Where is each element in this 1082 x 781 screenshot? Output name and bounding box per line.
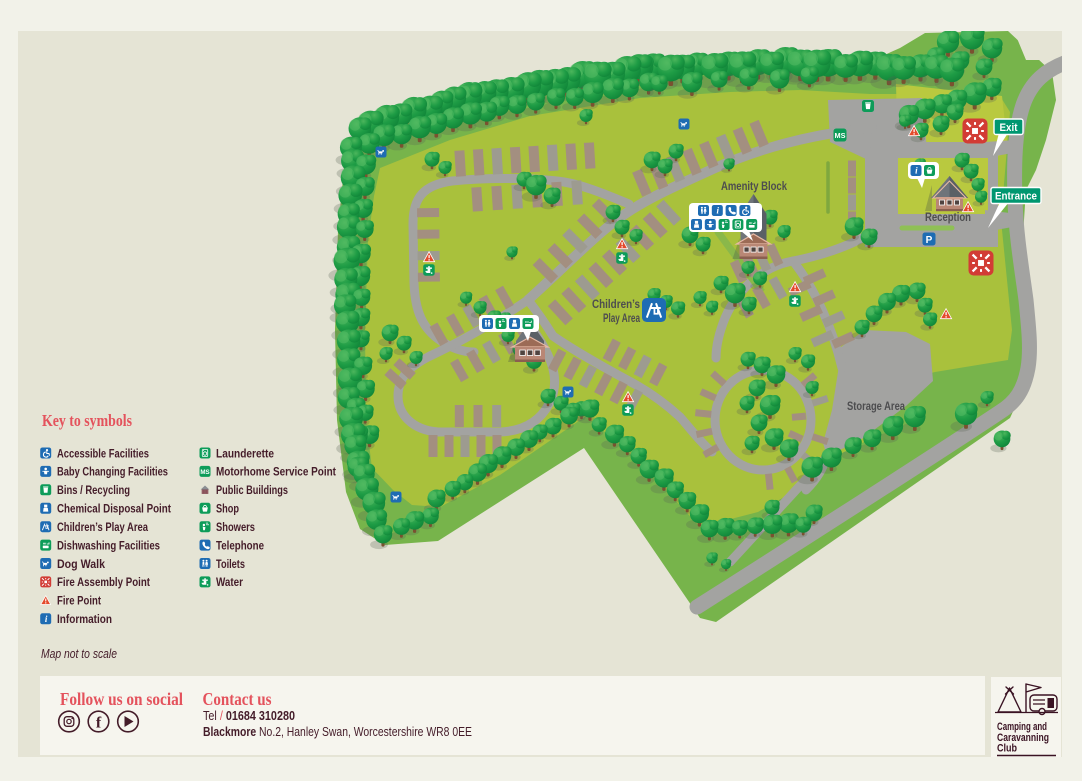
svg-text:Fire Assembly Point: Fire Assembly Point [57,575,150,589]
svg-text:Amenity Block: Amenity Block [721,179,787,193]
svg-text:Toilets: Toilets [216,557,245,571]
svg-text:Information: Information [57,612,112,626]
svg-text:Baby Changing Facilities: Baby Changing Facilities [57,465,168,479]
svg-text:Map not to scale: Map not to scale [41,646,117,661]
svg-text:Dog Walk: Dog Walk [57,557,105,571]
svg-text:Club: Club [997,743,1017,755]
svg-text:P: P [926,235,933,246]
svg-text:Contact us: Contact us [203,689,272,709]
svg-text:Showers: Showers [216,520,255,534]
svg-text:Play Area: Play Area [603,311,640,325]
svg-text:Motorhome Service Point: Motorhome Service Point [216,465,336,479]
svg-text:Storage Area: Storage Area [847,399,905,413]
svg-text:Children’s Play Area: Children’s Play Area [57,520,148,534]
svg-text:Key to symbols: Key to symbols [42,411,132,430]
svg-text:Public Buildings: Public Buildings [216,483,288,497]
svg-text:Entrance: Entrance [995,191,1037,203]
svg-text:Follow us on social: Follow us on social [60,689,183,709]
svg-text:Telephone: Telephone [216,538,264,552]
svg-text:Blackmore No.2, Hanley Swan, W: Blackmore No.2, Hanley Swan, Worcestersh… [203,724,472,739]
svg-text:Chemical Disposal Point: Chemical Disposal Point [57,502,171,516]
svg-text:Fire Point: Fire Point [57,594,101,608]
svg-text:Tel / 01684 310280: Tel / 01684 310280 [203,708,295,723]
svg-text:Dishwashing Facilities: Dishwashing Facilities [57,538,160,552]
svg-text:Exit: Exit [1000,122,1018,134]
svg-text:Accessible Facilities: Accessible Facilities [57,446,149,460]
svg-text:Shop: Shop [216,502,239,516]
svg-text:Bins / Recycling: Bins / Recycling [57,483,130,497]
svg-text:Launderette: Launderette [216,446,274,460]
svg-text:Water: Water [216,575,243,589]
svg-text:Reception: Reception [925,210,971,224]
svg-text:f: f [96,715,102,732]
svg-text:Children’s: Children’s [592,297,640,311]
